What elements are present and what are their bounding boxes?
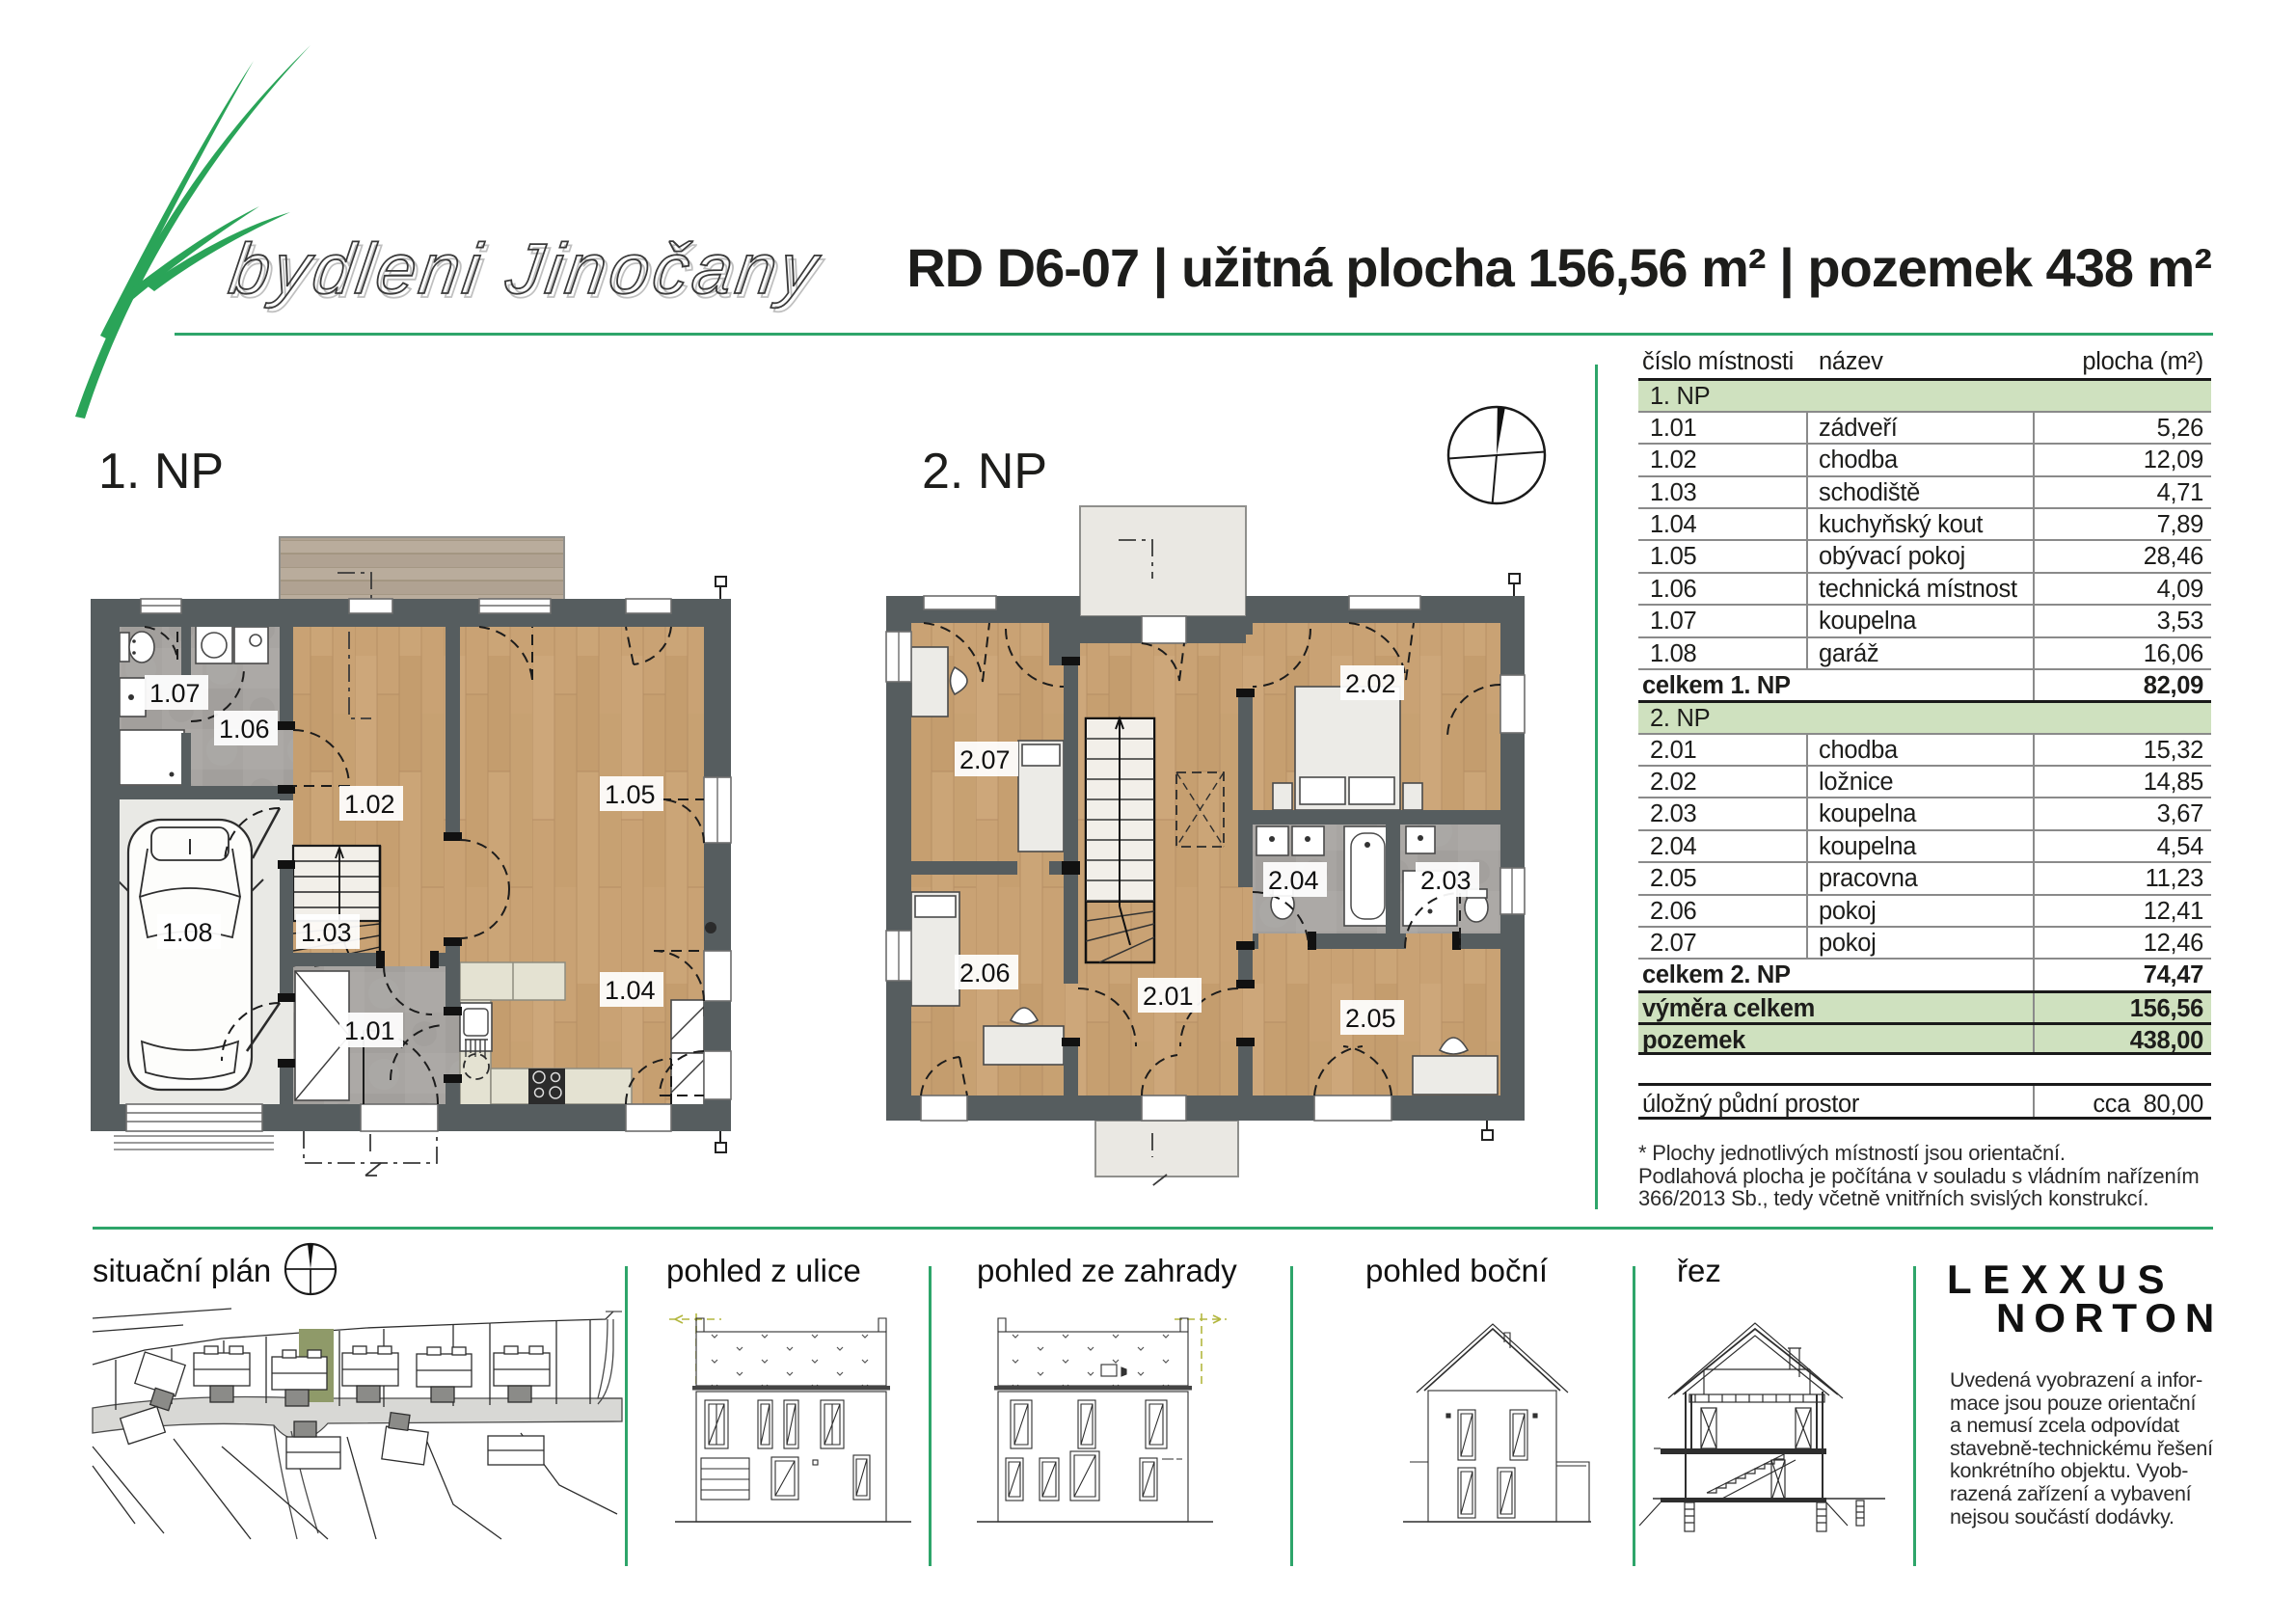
svg-text:2.07: 2.07 [959,745,1011,774]
svg-text:2.03: 2.03 [1420,866,1472,895]
svg-text:2.02: 2.02 [1345,669,1396,698]
svg-text:2.06: 2.06 [959,959,1011,987]
svg-text:1.06: 1.06 [219,715,270,744]
svg-text:1.01: 1.01 [344,1016,395,1045]
svg-text:2.04: 2.04 [1268,866,1319,895]
svg-text:1.04: 1.04 [605,976,656,1005]
svg-text:1.02: 1.02 [344,790,395,819]
svg-text:2.05: 2.05 [1345,1004,1396,1033]
svg-text:2.01: 2.01 [1143,982,1194,1011]
svg-text:1.03: 1.03 [301,918,352,947]
svg-text:1.07: 1.07 [149,679,201,708]
svg-text:1.05: 1.05 [605,780,656,809]
svg-text:1.08: 1.08 [162,918,213,947]
